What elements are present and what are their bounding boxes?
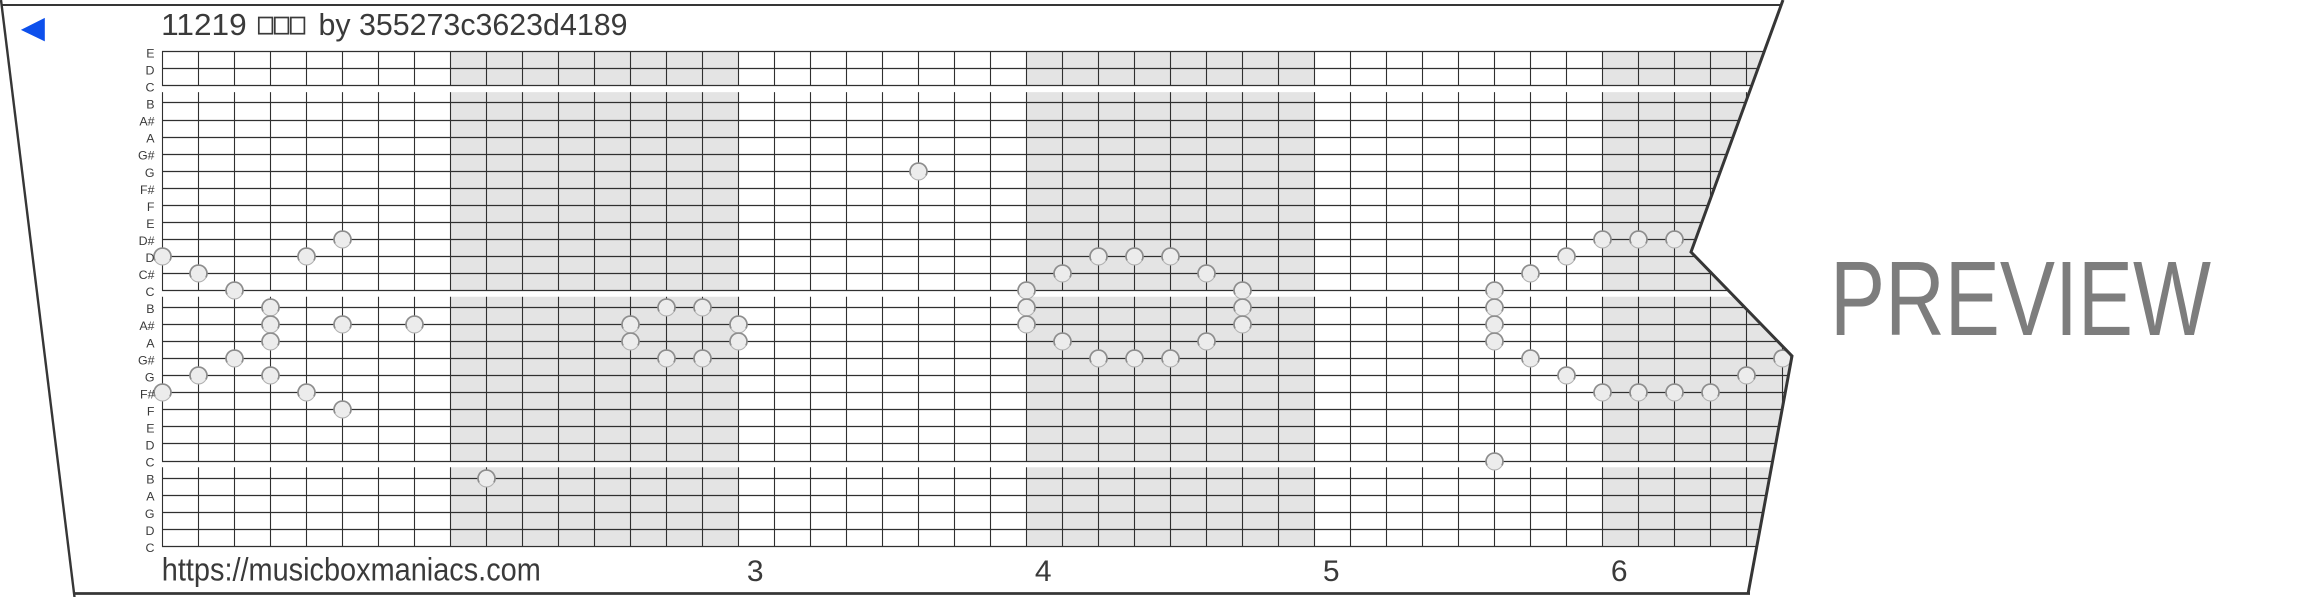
svg-text:D: D bbox=[146, 524, 155, 538]
svg-text:E: E bbox=[146, 422, 154, 436]
svg-text:A: A bbox=[146, 336, 155, 350]
svg-text:A: A bbox=[146, 490, 155, 504]
svg-text:B: B bbox=[146, 473, 154, 487]
svg-text:11219: 11219 bbox=[161, 8, 247, 42]
svg-text:A#: A# bbox=[139, 115, 154, 129]
svg-text:G: G bbox=[145, 370, 155, 384]
svg-text:C#: C# bbox=[139, 268, 155, 282]
svg-text:E: E bbox=[146, 217, 154, 231]
svg-text:F: F bbox=[147, 200, 155, 214]
svg-text:B: B bbox=[146, 98, 154, 112]
svg-text:4: 4 bbox=[1035, 555, 1052, 588]
svg-text:A: A bbox=[146, 132, 155, 146]
svg-text:D: D bbox=[146, 63, 155, 77]
svg-text:F: F bbox=[147, 405, 155, 419]
svg-text:by 355273c3623d4189: by 355273c3623d4189 bbox=[319, 8, 628, 42]
svg-text:B: B bbox=[146, 302, 154, 316]
svg-text:F#: F# bbox=[140, 387, 155, 401]
svg-text:C: C bbox=[146, 285, 155, 299]
svg-text:PREVIEW: PREVIEW bbox=[1830, 240, 2211, 358]
svg-text:D#: D# bbox=[139, 234, 155, 248]
svg-text:3: 3 bbox=[747, 555, 764, 588]
svg-text:C: C bbox=[146, 456, 155, 470]
svg-text:C: C bbox=[146, 81, 155, 95]
svg-text:E: E bbox=[146, 46, 154, 60]
svg-text:C: C bbox=[146, 541, 155, 555]
svg-text:D: D bbox=[146, 439, 155, 453]
svg-text:D: D bbox=[146, 251, 155, 265]
svg-text:G#: G# bbox=[138, 149, 155, 163]
svg-text:https://musicboxmaniacs.com: https://musicboxmaniacs.com bbox=[162, 552, 541, 588]
svg-text:F#: F# bbox=[140, 183, 155, 197]
svg-text:5: 5 bbox=[1323, 555, 1340, 588]
svg-text:A#: A# bbox=[139, 319, 154, 333]
svg-text:G: G bbox=[145, 507, 155, 521]
svg-text:G: G bbox=[145, 166, 155, 180]
svg-text:6: 6 bbox=[1611, 555, 1628, 588]
svg-text:G#: G# bbox=[138, 353, 155, 367]
